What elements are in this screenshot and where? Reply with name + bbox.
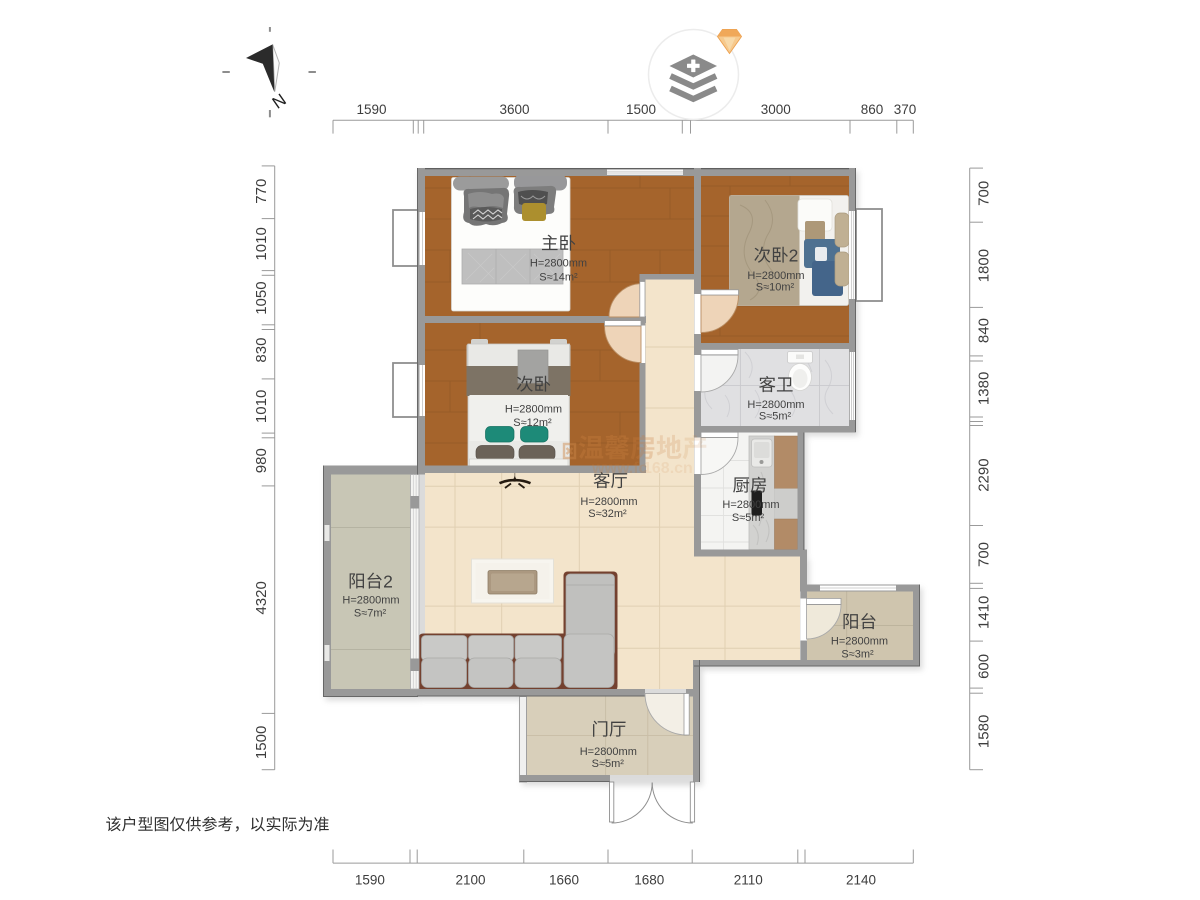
svg-text:1500: 1500 [253,726,270,759]
svg-text:S≈10m²: S≈10m² [756,282,795,294]
svg-text:1590: 1590 [355,873,385,888]
svg-text:S≈14m²: S≈14m² [539,272,578,284]
svg-text:2140: 2140 [846,873,876,888]
svg-text:H=2800mm: H=2800mm [505,404,562,416]
svg-text:1380: 1380 [976,372,993,405]
svg-text:H=2800mm: H=2800mm [530,258,587,270]
svg-text:1410: 1410 [976,596,993,629]
svg-text:3600: 3600 [499,102,529,117]
svg-text:H=2800mm: H=2800mm [580,496,637,508]
svg-text:700: 700 [976,542,993,567]
svg-text:4320: 4320 [253,581,270,614]
svg-text:600: 600 [976,654,993,679]
svg-text:1050: 1050 [253,281,270,314]
svg-text:H=2800mm: H=2800mm [722,499,779,511]
svg-text:S≈32m²: S≈32m² [588,508,627,520]
svg-text:2110: 2110 [734,873,763,888]
svg-text:S≈5m²: S≈5m² [592,758,625,770]
svg-text:S≈3m²: S≈3m² [841,649,874,661]
svg-text:2290: 2290 [976,458,993,491]
svg-text:860: 860 [861,102,884,117]
svg-text:2: 2 [383,571,393,591]
svg-text:3000: 3000 [761,102,791,117]
svg-text:S≈7m²: S≈7m² [354,608,387,620]
svg-text:1590: 1590 [356,102,386,117]
svg-text:1800: 1800 [976,249,993,282]
svg-text:H=2800mm: H=2800mm [747,399,804,411]
svg-text:S≈12m²: S≈12m² [513,417,552,429]
svg-text:S≈5m²: S≈5m² [759,411,792,423]
svg-text:1660: 1660 [549,873,579,888]
svg-text:1500: 1500 [626,102,656,117]
svg-text:370: 370 [894,102,917,117]
svg-text:2100: 2100 [455,873,485,888]
svg-text:S≈5m²: S≈5m² [732,512,765,524]
svg-text:1580: 1580 [976,715,993,748]
svg-text:H=2800mm: H=2800mm [580,746,637,758]
svg-text:168.cn: 168.cn [643,460,693,477]
svg-text:700: 700 [976,181,993,206]
svg-text:830: 830 [253,338,270,363]
svg-text:H=2800mm: H=2800mm [342,595,399,607]
svg-text:www.fc: www.fc [591,460,648,477]
svg-text:H=2800mm: H=2800mm [831,636,888,648]
svg-text:770: 770 [253,179,270,204]
svg-text:2: 2 [789,245,799,265]
svg-text:840: 840 [976,318,993,343]
svg-text:1010: 1010 [253,390,270,423]
svg-text:H=2800mm: H=2800mm [747,270,804,282]
svg-text:980: 980 [253,448,270,473]
svg-text:1680: 1680 [634,873,664,888]
svg-text:1010: 1010 [253,227,270,260]
